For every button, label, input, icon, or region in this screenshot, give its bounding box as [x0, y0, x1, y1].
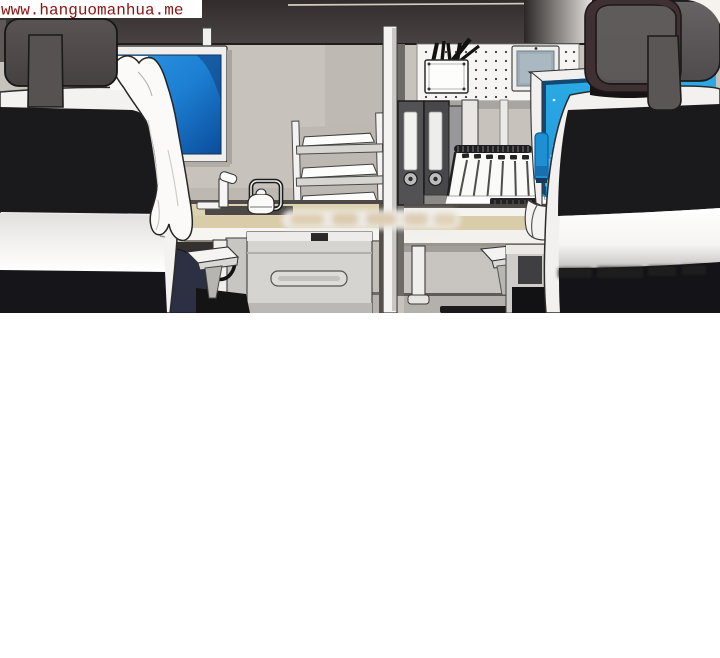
- svg-text:www.hanguomanhua.me: www.hanguomanhua.me: [1, 2, 183, 20]
